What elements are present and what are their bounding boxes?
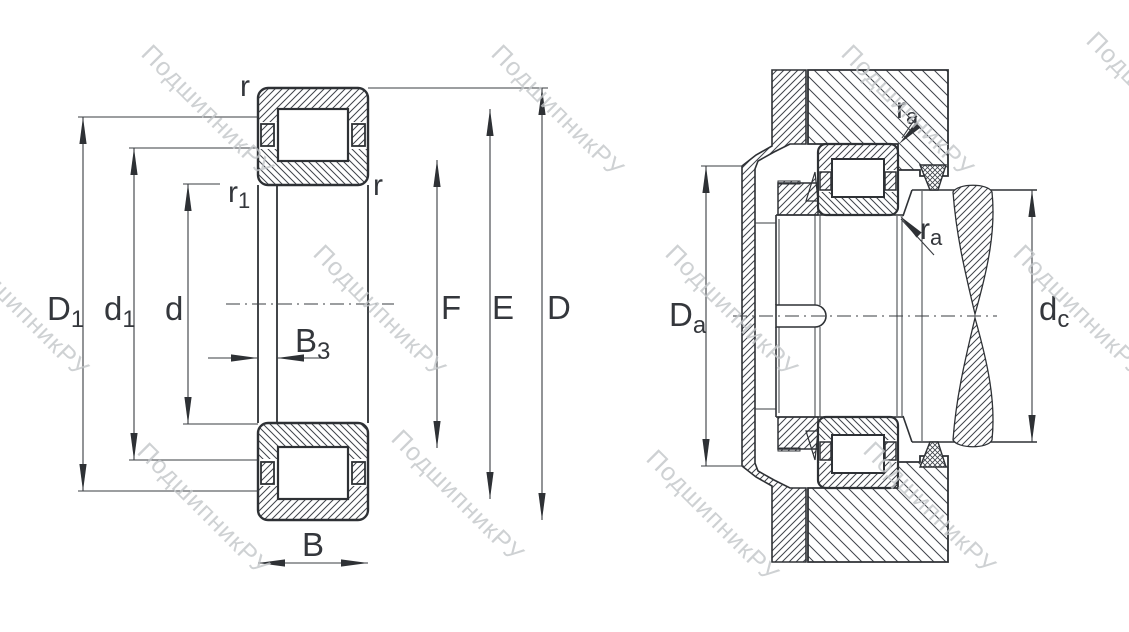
radius-label-ra-lower: ra <box>920 213 943 250</box>
radius-label-r-top: r <box>240 70 250 103</box>
watermark-text: ПодшипникРУ <box>386 424 530 568</box>
dim-label-Da: Da <box>669 296 707 339</box>
dim-label-D: D <box>547 289 571 326</box>
radius-label-r-inner: r <box>373 169 383 202</box>
dim-label-F: F <box>441 289 461 326</box>
technical-drawing-page: D1 d1 d B3 B F E D r r1 r <box>0 0 1129 632</box>
cage-square-lower-right <box>352 462 365 484</box>
watermark-text: ПодшипникРУ <box>486 39 630 183</box>
bearing-drawing-svg: D1 d1 d B3 B F E D r r1 r <box>0 0 1129 632</box>
watermark-text: ПодшипникРУ <box>132 437 276 581</box>
dim-label-d: d <box>165 290 183 327</box>
roller-mounted-upper <box>832 159 884 197</box>
radius-label-r1: r1 <box>228 176 250 213</box>
dim-label-B: B <box>302 526 324 563</box>
cage-square-lower-left <box>261 462 274 484</box>
dim-label-B3: B3 <box>295 322 330 365</box>
cage-square-mounted-ur <box>885 172 896 190</box>
dim-label-d1: d1 <box>104 290 136 333</box>
dim-label-E: E <box>492 289 514 326</box>
cage-square-mounted-ul <box>820 172 831 190</box>
roller-upper <box>278 109 348 161</box>
roller-lower <box>278 447 348 499</box>
cage-square-mounted-ll <box>820 442 831 460</box>
cage-square-upper-right <box>352 124 365 146</box>
watermark-text: ПодшипникРУ <box>1081 26 1129 170</box>
cage-square-upper-left <box>261 124 274 146</box>
left-view-bearing-section: D1 d1 d B3 B F E D r r1 r <box>47 70 571 567</box>
watermark-text: ПодшипникРУ <box>1008 239 1129 383</box>
